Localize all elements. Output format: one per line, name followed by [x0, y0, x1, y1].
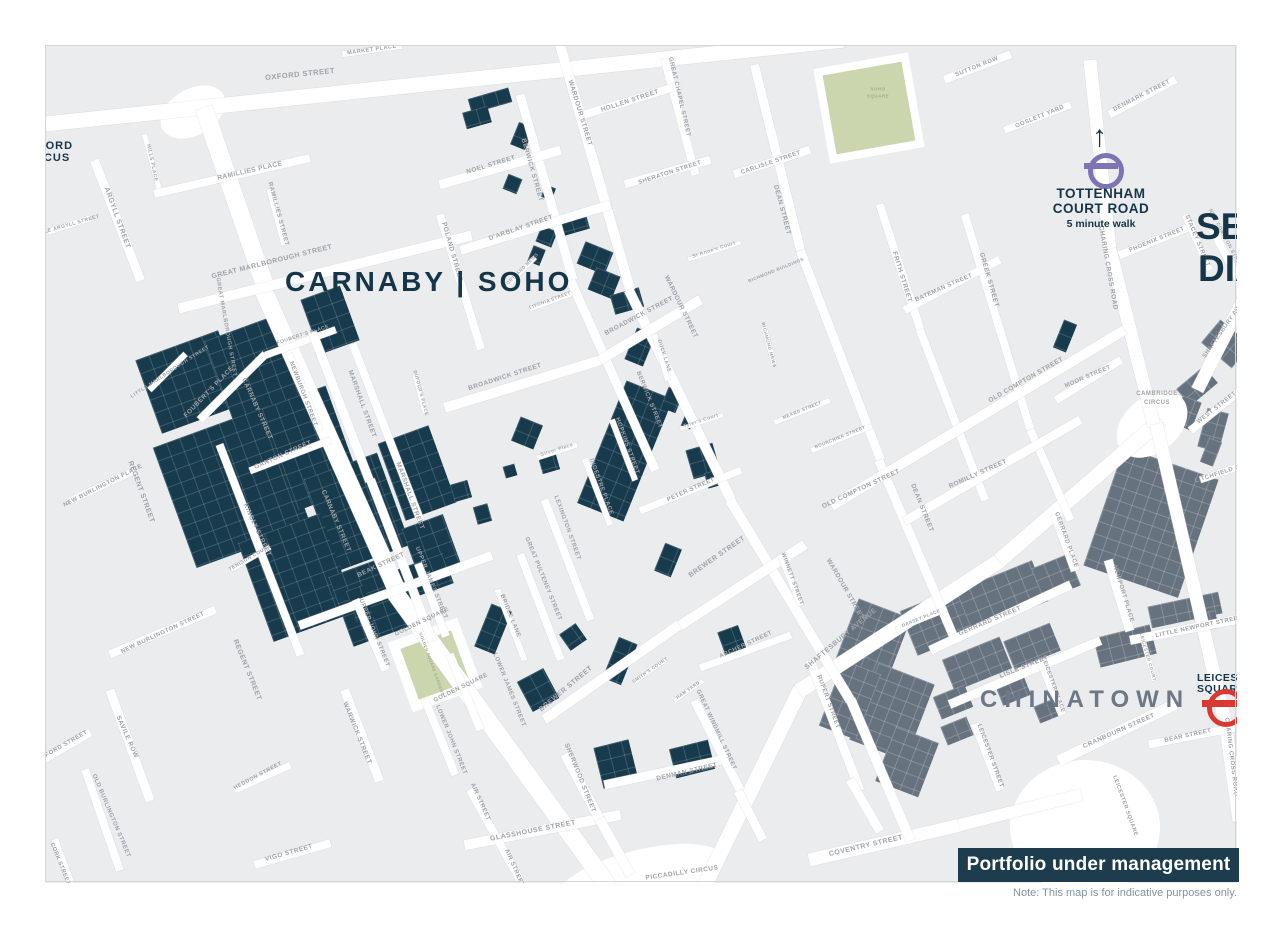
area-title-carnaby-soho: CARNABY | SOHO: [285, 266, 572, 298]
street-label: SOHO: [870, 87, 885, 92]
area-title-chinatown: CHINATOWN: [980, 686, 1190, 714]
elizabeth-line-roundel-icon: [1088, 153, 1124, 189]
tottenham-court-road-label-line2: COURT ROAD: [1040, 201, 1162, 216]
portfolio-map-page: CARNABY | SOHO CHINATOWN SEVEN DIALS OXF…: [0, 0, 1280, 930]
street-label: CIRCUS: [1144, 400, 1170, 406]
soho-square-garden: [823, 62, 916, 155]
elizabeth-line-roundel-bar: [1084, 163, 1118, 169]
tottenham-walk-label: 5 minute walk: [1040, 218, 1162, 230]
map-note: Note: This map is for indicative purpose…: [600, 887, 1237, 899]
margin-top: [0, 0, 1280, 45]
tottenham-court-road-label-line1: TOTTENHAM: [1040, 186, 1162, 201]
map-canvas: CARNABY | SOHO CHINATOWN SEVEN DIALS OXF…: [0, 0, 1280, 930]
street-label: CAMBRIDGE: [1136, 391, 1178, 397]
north-arrow-icon: ↑: [1092, 120, 1107, 154]
margin-right: [1237, 0, 1280, 930]
margin-left: [0, 0, 45, 930]
underground-roundel-bar: [1202, 700, 1240, 707]
legend-portfolio-under-management: Portfolio under management: [958, 848, 1239, 882]
street-label: SQUARE: [867, 94, 889, 99]
